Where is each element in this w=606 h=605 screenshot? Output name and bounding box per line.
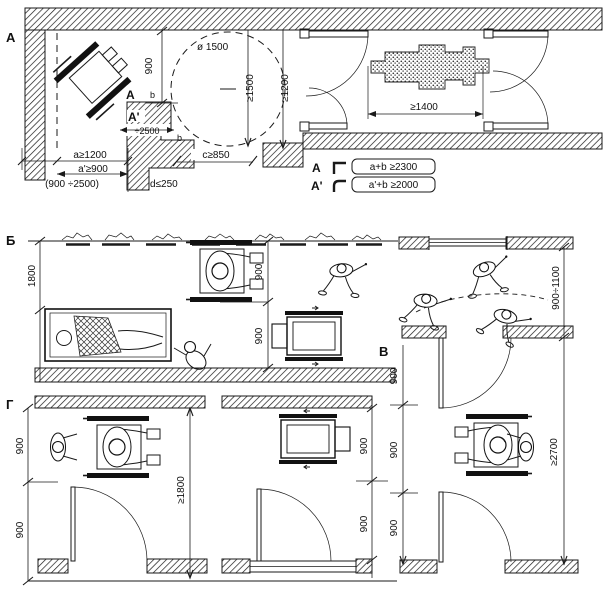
- corner-symbol-sharp: [334, 163, 346, 174]
- corner-a-label: А: [126, 88, 135, 102]
- dim-g2-900-1: 900: [359, 437, 370, 454]
- corridor-left-wall: [25, 30, 45, 180]
- legend-row1-corner: А: [312, 161, 321, 175]
- dim-v-900-1: 900: [389, 367, 400, 384]
- plan-b: Б 1800 900 900: [6, 233, 398, 382]
- wheelchair-empty-g: [279, 409, 350, 469]
- dim-g-900-2: 900: [15, 521, 26, 538]
- v-bottom-wall-left: [400, 560, 437, 573]
- dim-900-1100: 900÷1100: [551, 266, 562, 310]
- v-bottom-wall-right: [505, 560, 578, 573]
- dim-g2-900-2: 900: [359, 515, 370, 532]
- dim-ge2700: ≥2700: [549, 438, 560, 466]
- letter-b-lower: b: [177, 133, 182, 143]
- section-v-label: В: [379, 344, 388, 359]
- dim-v-900-3: 900: [389, 519, 400, 536]
- legend-rule-2: a'+b ≥2000: [369, 180, 419, 191]
- door-bottom-right: [484, 71, 548, 131]
- dim-a900: a'≥900: [78, 164, 108, 175]
- dim-pier: ÷2500: [135, 126, 160, 136]
- plan-g: Г 900 900 ≥1800 900 900: [6, 396, 397, 585]
- wheelchair-user-g: [83, 416, 160, 478]
- floor-plan-page: А 900 b А А' ÷2500 b: [0, 0, 606, 605]
- door-bottom-left: [300, 88, 347, 131]
- window: [429, 236, 507, 250]
- rubble-scribbles: [62, 233, 381, 240]
- dim-ge1400: ≥1400: [410, 102, 438, 113]
- corridor-bottom-wall: [303, 133, 602, 149]
- v-door-upper: [439, 338, 511, 408]
- dim-b-900-lower: 900: [254, 327, 265, 344]
- section-g-label: Г: [6, 397, 14, 412]
- section-b-label: Б: [6, 233, 15, 248]
- dim-c850: c≥850: [202, 150, 230, 161]
- walker-b: [318, 257, 367, 300]
- walker-v-2: [464, 255, 513, 298]
- dim-ge1500: ≥1500: [245, 74, 256, 102]
- g-bottom-wall-2b: [356, 559, 372, 573]
- dim-v-900-2: 900: [389, 441, 400, 458]
- attendant-g: [51, 433, 78, 461]
- wheelchair-user-b: [186, 240, 263, 302]
- v-mid-wall-right: [503, 326, 573, 338]
- bed: [45, 309, 171, 361]
- door-top-left: [300, 29, 368, 96]
- g-bottom-wall-2a: [222, 559, 250, 573]
- v-top-wall-left: [399, 237, 429, 249]
- dim-1800: 1800: [27, 264, 38, 287]
- wheelchair-user-stippled-icon: [371, 45, 489, 89]
- wheelchair-empty-b: [272, 306, 343, 366]
- g-top-wall-1: [35, 396, 205, 408]
- letter-b-upper: b: [150, 90, 155, 100]
- dim-a1200: a≥1200: [73, 150, 107, 161]
- v-mid-wall-left: [402, 326, 446, 338]
- g-bottom-wall-1b: [147, 559, 207, 573]
- dim-ge1200: ≥1200: [280, 74, 291, 102]
- v-door-lower: [439, 492, 511, 562]
- turning-circle-dim: ø 1500: [197, 42, 229, 53]
- section-a-label: А: [6, 30, 16, 45]
- legend: А a+b ≥2300 А' a'+b ≥2000: [311, 159, 435, 193]
- dim-b900: 900: [144, 57, 155, 74]
- g-door-2: [257, 489, 331, 561]
- plan-v: В 900÷1100 ≥2700 900 9: [379, 236, 578, 573]
- accessibility-floor-plan-diagram: А 900 b А А' ÷2500 b: [0, 0, 606, 605]
- threshold-ramp: [250, 561, 356, 572]
- g-door-1: [71, 487, 147, 561]
- walker-v-3: [476, 298, 533, 352]
- door-top-right: [484, 29, 548, 92]
- legend-rule-1: a+b ≥2300: [370, 162, 418, 173]
- legend-row2-corner: А': [311, 179, 323, 193]
- dim-ge1800: ≥1800: [176, 476, 187, 504]
- corner-a-prime-label: А': [128, 110, 140, 124]
- b-bottom-wall: [35, 368, 395, 382]
- dim-range: (900 ÷2500): [45, 179, 99, 190]
- dim-d250: d≤250: [150, 179, 178, 190]
- plan-a: А 900 b А А' ÷2500 b: [6, 8, 602, 192]
- g-top-wall-2: [222, 396, 372, 408]
- corner-symbol-rounded: [334, 181, 346, 192]
- g-bottom-wall-1a: [38, 559, 68, 573]
- dim-g-900-1: 900: [15, 437, 26, 454]
- dim-b-900-upper: 900: [254, 263, 265, 280]
- corridor-top-wall: [25, 8, 602, 30]
